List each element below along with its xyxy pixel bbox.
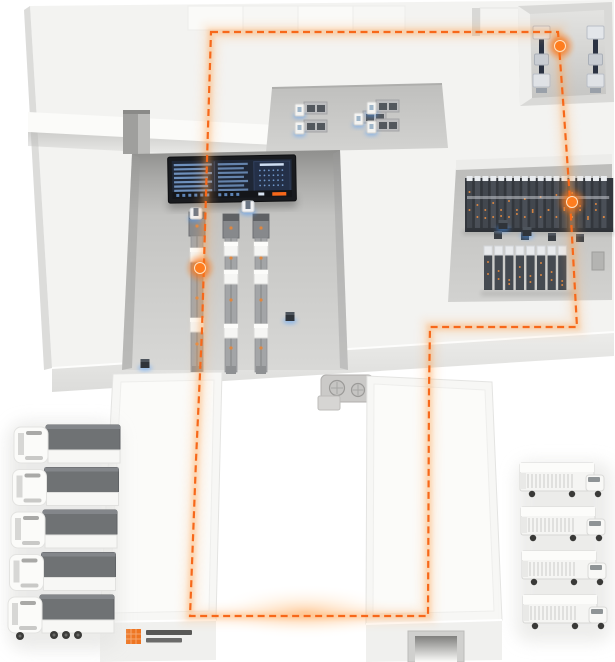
- warehouse-illustration: [0, 0, 615, 662]
- hvac-unit: [318, 375, 373, 410]
- heavy-truck-fleet: [8, 425, 120, 640]
- wall-notch: [123, 110, 150, 154]
- heavy-truck: [11, 510, 117, 548]
- heavy-truck: [10, 553, 116, 591]
- agv-robot: [240, 201, 256, 215]
- inbound-machine: [587, 26, 604, 93]
- flow-node: [186, 254, 214, 282]
- logo-mark: [126, 629, 141, 644]
- flow-node: [546, 32, 574, 60]
- heavy-truck: [8, 595, 114, 640]
- dock-door: [408, 631, 464, 662]
- flow-node: [558, 188, 586, 216]
- logo-text-line: [146, 630, 192, 635]
- conveyor-line: [253, 214, 269, 374]
- heavy-truck: [13, 468, 119, 506]
- dashboard-screen: [168, 155, 297, 209]
- heavy-truck: [14, 425, 120, 463]
- warehouse-overview: [0, 0, 615, 662]
- small-crate-stack: [592, 252, 604, 270]
- workstation-room: [266, 84, 448, 152]
- conveyor-line: [223, 214, 239, 374]
- logo-text-line: [146, 638, 182, 643]
